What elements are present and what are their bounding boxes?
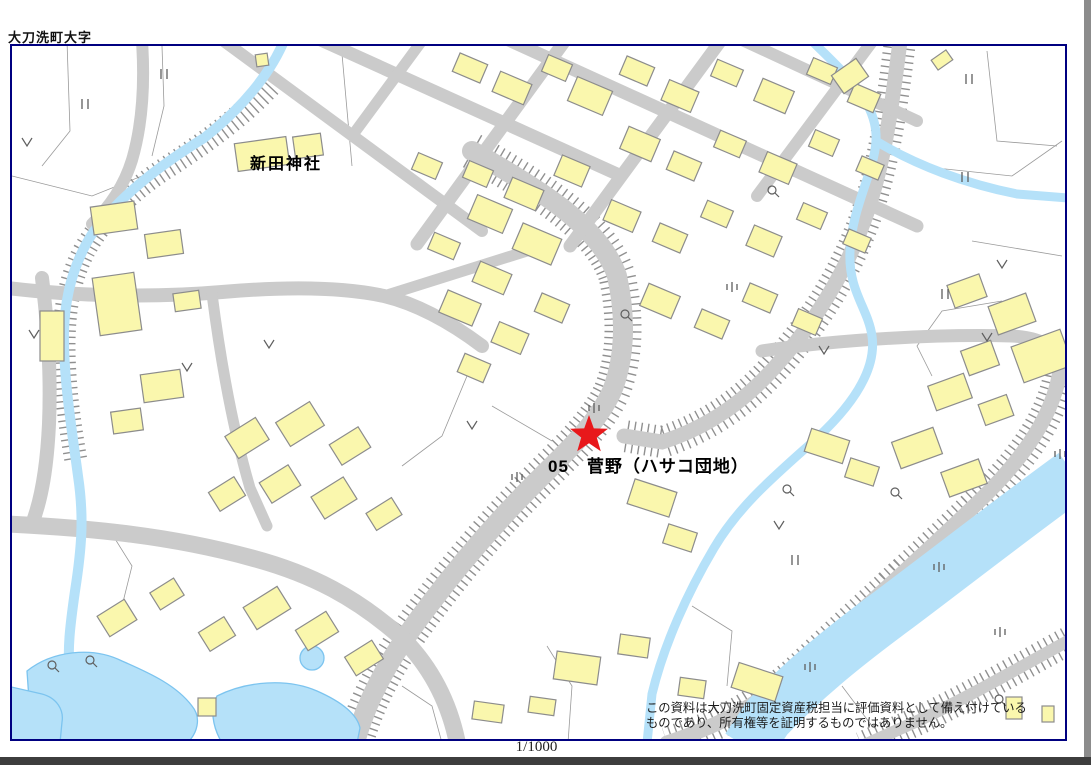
vegetation-symbol [182,363,192,371]
parcel-boundary-line [342,54,352,166]
building [243,586,291,629]
road [12,288,482,346]
building [276,402,325,447]
field-symbol [995,627,1005,637]
location-label: 05 菅野（ハサコ団地） [548,452,749,477]
shrine-label: 新田神社 [250,150,322,174]
building [731,663,783,702]
stream [876,141,1065,198]
parcel-boundary-line [492,406,552,441]
paddy-field-symbol [966,74,972,84]
vegetation-symbol [774,521,784,529]
parcel-boundary-line [692,606,732,686]
building [428,232,461,260]
building [259,465,301,503]
building [678,677,706,698]
building [553,651,600,685]
building [173,290,201,311]
building [528,696,556,715]
map-canvas[interactable] [12,46,1065,739]
right-scrollbar[interactable] [1084,0,1091,757]
building [892,427,943,468]
stream-levee-hatching [64,86,270,461]
building [311,477,357,519]
field-symbol [727,282,737,292]
building [97,599,137,636]
building [742,283,777,313]
building [492,71,532,105]
building [40,311,64,361]
map-frame: 新田神社 05 菅野（ハサコ団地） この資料は大刀洗町固定資産税担当に評価資料と… [10,44,1067,741]
parcel-boundary-line [987,51,1057,146]
parcel-boundary-line [402,376,467,466]
building [711,59,744,87]
building [694,309,729,339]
disclaimer-text: この資料は大刀洗町固定資産税担当に評価資料として備え付けている ものであり、所有… [646,701,1056,731]
building [140,369,184,402]
building [150,578,184,610]
building [746,225,782,257]
disclaimer-line-1: この資料は大刀洗町固定資産税担当に評価資料として備え付けている [646,701,1056,716]
well-symbol [775,193,779,197]
well-symbol [891,488,899,496]
vegetation-symbol [467,421,477,429]
well-symbol [898,495,902,499]
scale-label: 1/1000 [10,739,1063,756]
bottom-scrollbar[interactable] [0,757,1091,765]
parcel-boundary-line [42,46,70,166]
building [618,634,650,658]
building [652,223,687,253]
building [472,701,504,723]
building [198,698,216,716]
building [145,230,184,259]
building [295,611,338,650]
vegetation-symbol [997,260,1007,268]
parcel-boundary-line [152,46,164,156]
pond [213,683,360,739]
building [809,130,840,157]
building [797,203,828,230]
building [666,151,701,181]
building [255,53,269,67]
building [452,53,487,83]
paddy-field-symbol [161,69,167,79]
building [534,293,569,323]
paddy-field-symbol [792,555,798,565]
well-symbol [790,492,794,496]
building [978,395,1014,426]
building [90,201,137,235]
pond [300,646,324,670]
building [961,340,1000,375]
disclaimer-line-2: ものであり、所有権等を証明するものではありません。 [646,716,1056,731]
building [754,78,795,113]
building [714,130,747,158]
building [329,427,371,465]
vegetation-symbol [264,340,274,348]
well-symbol [768,186,776,194]
building [701,200,734,228]
building [472,261,512,295]
building [92,272,142,335]
vegetation-symbol [22,138,32,146]
building [663,524,698,552]
paddy-field-symbol [942,289,948,299]
building [619,56,654,86]
map-viewer-page: 大刀洗町大字 新田神社 05 菅野（ハサコ団地） この資料は大刀洗町固定資産税担… [0,0,1091,765]
building [627,479,677,517]
building [845,458,880,486]
building [366,498,402,531]
paddy-field-symbol [82,99,88,109]
building [198,617,235,652]
building [928,373,973,410]
building [640,283,681,318]
building [457,353,491,382]
building [491,322,529,355]
building [988,293,1036,335]
building [947,274,987,308]
building [111,408,144,434]
vegetation-symbol [29,330,39,338]
well-symbol [783,485,791,493]
building [804,428,849,463]
building [931,50,953,70]
building [208,477,245,512]
parcel-boundary-line [972,241,1062,256]
